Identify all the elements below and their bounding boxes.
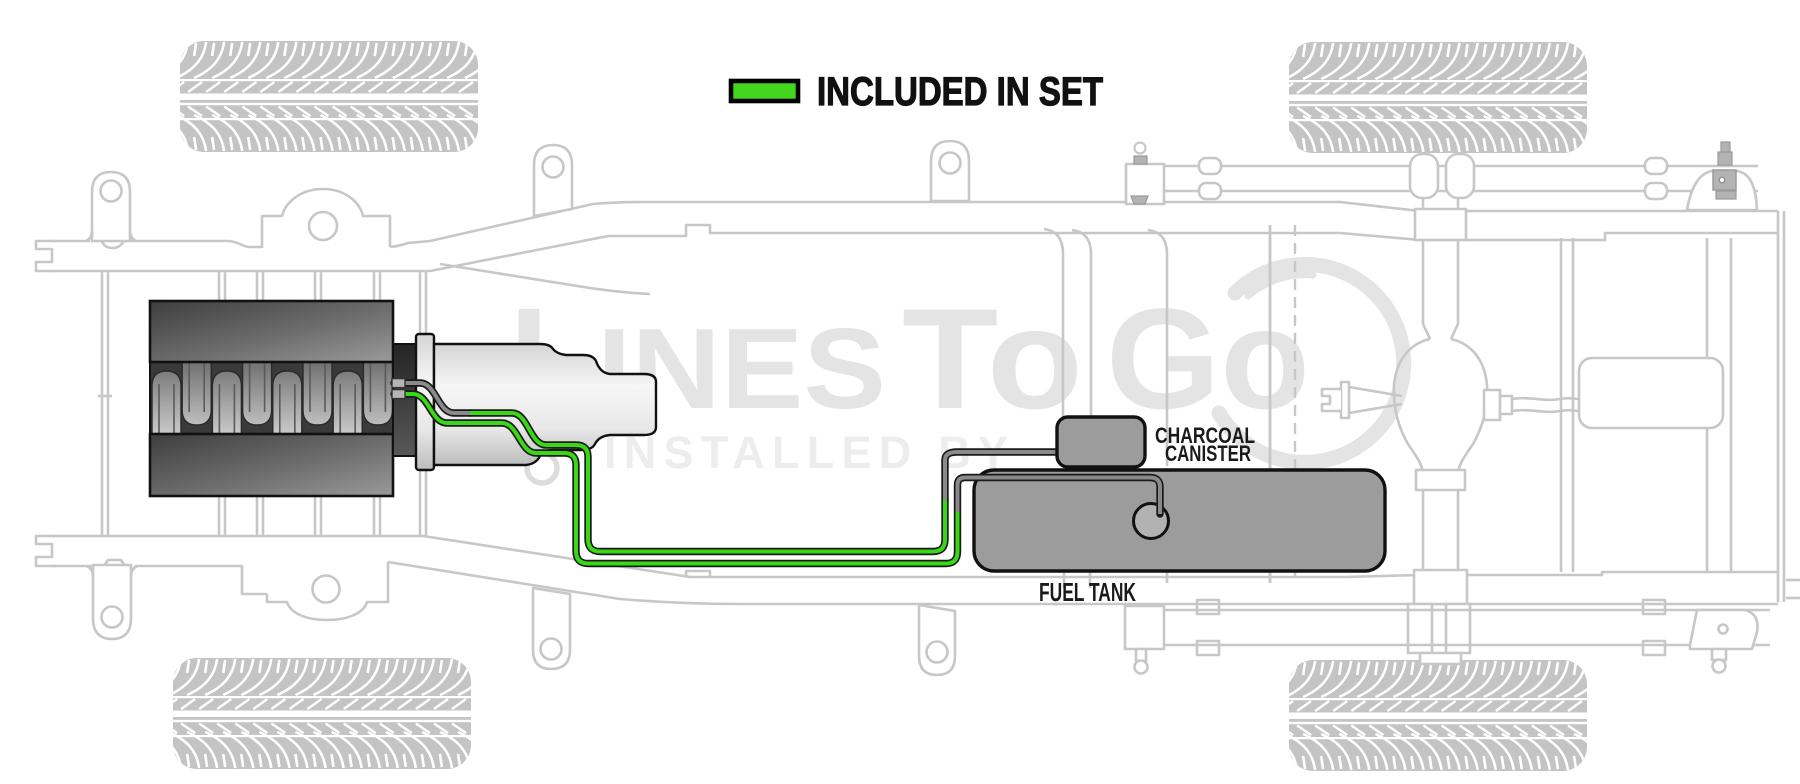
svg-text:CANISTER: CANISTER bbox=[1165, 441, 1251, 466]
svg-text:Go: Go bbox=[1106, 280, 1310, 439]
svg-text:FUEL TANK: FUEL TANK bbox=[1039, 577, 1136, 607]
svg-text:To: To bbox=[902, 280, 1083, 439]
svg-text:INCLUDED IN SET: INCLUDED IN SET bbox=[817, 70, 1103, 114]
